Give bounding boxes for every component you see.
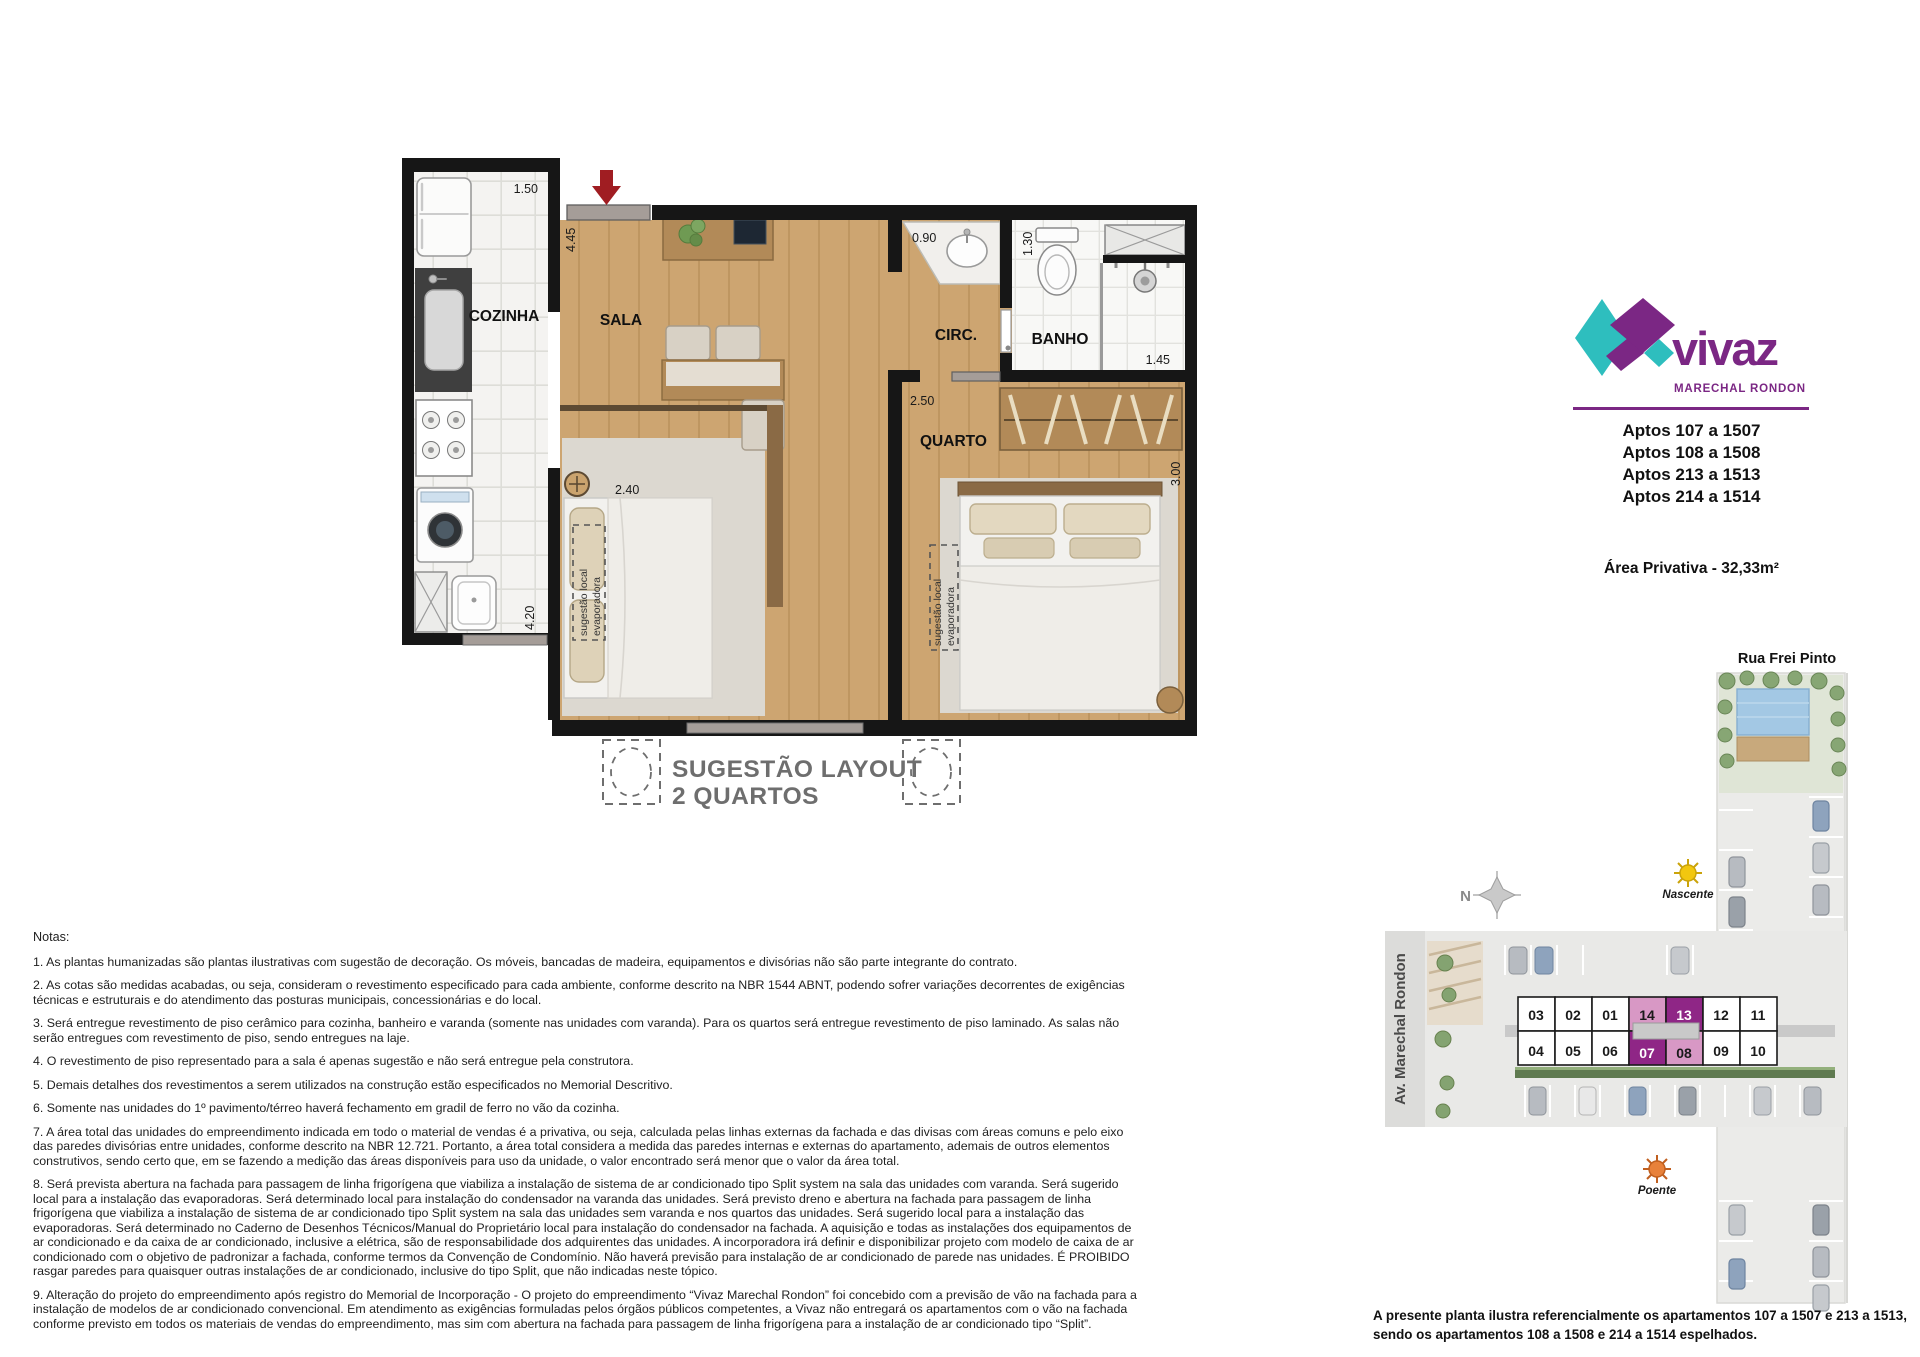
- street-left-label: Av. Marechal Rondon: [1392, 953, 1409, 1105]
- car: [1729, 857, 1745, 887]
- unit-number: 10: [1750, 1043, 1766, 1059]
- dim-living-side: 4.45: [564, 228, 578, 252]
- unit-number: 11: [1751, 1007, 1766, 1023]
- shower-divider: [1100, 263, 1103, 370]
- suggestion-subtitle: 2 QUARTOS: [672, 783, 819, 810]
- brand-name: vivaz: [1672, 321, 1777, 376]
- note-item: 7. A área total das unidades do empreend…: [33, 1125, 1138, 1169]
- condenser-circle: [611, 748, 651, 796]
- apartment-range: Aptos 107 a 1507: [1573, 420, 1810, 442]
- brand-block: vivaz MARECHAL RONDON: [1573, 293, 1813, 418]
- note-item: 5. Demais detalhes dos revestimentos a s…: [33, 1078, 1138, 1093]
- car: [1629, 1087, 1646, 1115]
- apartment-range: Aptos 214 a 1514: [1573, 486, 1810, 508]
- note-item: 8. Será prevista abertura na fachada par…: [33, 1177, 1138, 1279]
- sun-east-label: Nascente: [1662, 889, 1714, 901]
- unit-number: 04: [1528, 1043, 1544, 1059]
- car: [1729, 1205, 1745, 1235]
- note-item: 1. As plantas humanizadas são plantas il…: [33, 955, 1138, 970]
- car: [1671, 947, 1689, 974]
- tv: [734, 220, 766, 244]
- tree: [1719, 673, 1735, 689]
- leisure-area: [1718, 671, 1846, 793]
- site-disclaimer-line1: A presente planta ilustra referencialmen…: [1373, 1306, 1918, 1325]
- unit-number: 05: [1565, 1043, 1581, 1059]
- tree: [1436, 1104, 1450, 1118]
- compass-n: N: [1460, 888, 1471, 905]
- label-living: SALA: [600, 312, 642, 329]
- unit-number: 02: [1565, 1007, 1581, 1023]
- car: [1813, 885, 1829, 915]
- tree: [1718, 700, 1732, 714]
- note-item: 6. Somente nas unidades do 1º pavimento/…: [33, 1101, 1138, 1116]
- car: [1729, 897, 1745, 927]
- car: [1579, 1087, 1596, 1115]
- site-plan: Rua Frei Pinto: [1385, 645, 1920, 1315]
- tree: [1720, 754, 1734, 768]
- street-top-label: Rua Frei Pinto: [1738, 651, 1836, 667]
- suggested-partition-wall: [767, 405, 783, 607]
- dim-toilet: 1.30: [1021, 232, 1035, 256]
- tree: [1442, 988, 1456, 1002]
- dim-kitchen-side: 4.20: [523, 606, 537, 630]
- dim-bedroom-top: 2.50: [910, 394, 934, 408]
- label-kitchen: COZINHA: [469, 308, 540, 325]
- dim-suggested-bed: 2.40: [615, 483, 639, 497]
- sun-west-label: Poente: [1638, 1185, 1677, 1197]
- entry-door: [567, 205, 650, 220]
- headboard: [958, 482, 1162, 496]
- tree: [1831, 738, 1845, 752]
- pillow: [984, 538, 1054, 558]
- suggestion-title: SUGESTÃO LAYOUT: [672, 755, 922, 783]
- dim-bath-counter: 0.90: [912, 231, 936, 245]
- dim-bedroom-side: 3.00: [1169, 462, 1183, 486]
- tree: [1763, 672, 1779, 688]
- floor-plan: COZINHA SALA CIRC. BANHO QUARTO 1.50 4.4…: [400, 148, 1200, 828]
- private-area: Área Privativa - 32,33m²: [1573, 560, 1810, 578]
- sun-east-icon: [1674, 859, 1702, 887]
- service-shaft: [415, 572, 447, 632]
- car: [1804, 1087, 1821, 1115]
- kitchen-sill: [463, 635, 547, 645]
- evaporator-label: sugestão local: [578, 569, 590, 636]
- vivaz-logo-icon: [1573, 298, 1677, 379]
- stove: [416, 400, 472, 476]
- car: [1813, 1205, 1829, 1235]
- evaporator-label: sugestão local: [932, 579, 944, 646]
- wardrobe: [1000, 388, 1182, 450]
- pool: [1737, 689, 1809, 735]
- sun-west-icon: [1643, 1155, 1671, 1183]
- note-item: 4. O revestimento de piso representado p…: [33, 1054, 1138, 1069]
- building-band: Av. Marechal Rondon: [1385, 931, 1847, 1127]
- unit-number: 06: [1602, 1043, 1618, 1059]
- vent-shaft: [1105, 225, 1185, 255]
- compass-rose-icon: [1479, 877, 1515, 913]
- hedge: [1515, 1067, 1835, 1070]
- deck: [1737, 737, 1809, 761]
- bedroom-door: [952, 372, 1000, 381]
- dim-kitchen-top: 1.50: [514, 182, 538, 196]
- note-item: 3. Será entregue revestimento de piso ce…: [33, 1016, 1138, 1045]
- tree: [1740, 671, 1754, 685]
- hedge: [1515, 1070, 1835, 1078]
- label-circulation: CIRC.: [935, 327, 977, 344]
- tree: [1437, 955, 1453, 971]
- toilet: [1036, 228, 1078, 295]
- car: [1535, 947, 1553, 974]
- building-core: [1633, 1023, 1699, 1039]
- compass: N: [1460, 871, 1521, 919]
- layout-suggestion: SUGESTÃO LAYOUT 2 QUARTOS: [603, 740, 960, 810]
- apartment-range: Aptos 108 a 1508: [1573, 442, 1810, 464]
- pillow: [970, 504, 1056, 534]
- fridge: [417, 178, 471, 256]
- car: [1509, 947, 1527, 974]
- tree: [1811, 673, 1827, 689]
- tree: [1830, 686, 1844, 700]
- wall-clock-decor: [565, 472, 589, 496]
- tree: [1832, 762, 1846, 776]
- unit-number: 12: [1713, 1007, 1729, 1023]
- laundry-tub: [452, 576, 496, 630]
- window-sill: [687, 723, 863, 733]
- bedside-table: [1157, 687, 1183, 713]
- brand-location: MARECHAL RONDON: [1674, 383, 1806, 395]
- unit-number: 07: [1639, 1045, 1655, 1061]
- bed: [958, 482, 1162, 710]
- evaporator-label: evaporadora: [591, 577, 603, 636]
- car: [1679, 1087, 1696, 1115]
- counter-sink: [415, 268, 472, 392]
- tree: [1831, 712, 1845, 726]
- apartment-range: Aptos 213 a 1513: [1573, 464, 1810, 486]
- suggested-partition: [560, 405, 783, 411]
- page: COZINHA SALA CIRC. BANHO QUARTO 1.50 4.4…: [0, 0, 1920, 1357]
- evaporator-label: evaporadora: [945, 587, 957, 646]
- tree: [1718, 728, 1732, 742]
- entry-arrow-icon: [592, 170, 621, 205]
- site-disclaimer-line2: sendo os apartamentos 108 a 1508 e 214 a…: [1373, 1325, 1918, 1344]
- unit-number: 14: [1639, 1007, 1655, 1023]
- tree: [1435, 1031, 1451, 1047]
- label-bathroom: BANHO: [1032, 331, 1089, 348]
- apartment-list: Aptos 107 a 1507 Aptos 108 a 1508 Aptos …: [1573, 420, 1810, 508]
- brand-rule: [1573, 407, 1809, 410]
- notes-heading: Notas:: [33, 930, 1138, 945]
- pillow: [1070, 538, 1140, 558]
- car: [1729, 1259, 1745, 1289]
- washing-machine: [417, 488, 473, 562]
- driveway: [1427, 941, 1483, 1025]
- car: [1813, 1247, 1829, 1277]
- site-disclaimer: A presente planta ilustra referencialmen…: [1373, 1306, 1918, 1344]
- label-bedroom: QUARTO: [920, 433, 987, 450]
- car: [1754, 1087, 1771, 1115]
- dim-shower: 1.45: [1146, 353, 1170, 367]
- car: [1813, 801, 1829, 831]
- notes-block: Notas: 1. As plantas humanizadas são pla…: [33, 930, 1138, 1340]
- car: [1813, 843, 1829, 873]
- tree: [1440, 1076, 1454, 1090]
- unit-number: 03: [1528, 1007, 1544, 1023]
- bathroom-door: [1001, 310, 1011, 352]
- pillow: [1064, 504, 1150, 534]
- unit-number: 08: [1676, 1045, 1692, 1061]
- tree: [1788, 671, 1802, 685]
- note-item: 9. Alteração do projeto do empreendiment…: [33, 1288, 1138, 1332]
- note-item: 2. As cotas são medidas acabadas, ou sej…: [33, 978, 1138, 1007]
- unit-number: 01: [1602, 1007, 1618, 1023]
- unit-number: 09: [1713, 1043, 1729, 1059]
- unit-number: 13: [1676, 1007, 1692, 1023]
- car: [1529, 1087, 1546, 1115]
